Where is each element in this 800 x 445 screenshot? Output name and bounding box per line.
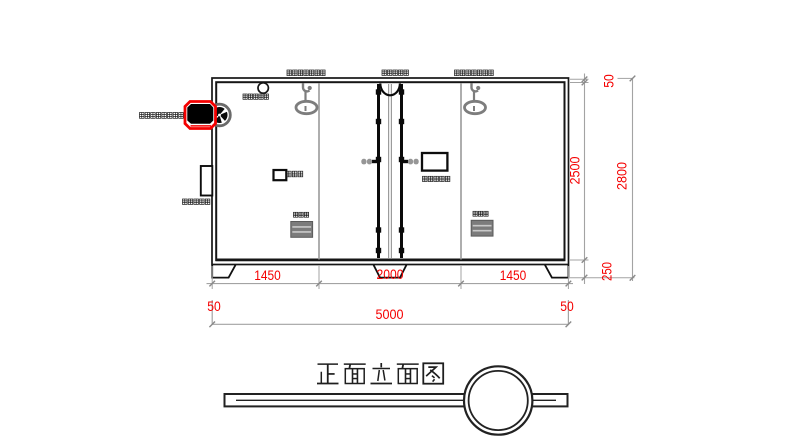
svg-text:250: 250 bbox=[600, 262, 615, 281]
svg-text:2800: 2800 bbox=[615, 162, 630, 190]
svg-text:2500: 2500 bbox=[568, 157, 583, 185]
svg-text:50: 50 bbox=[207, 299, 221, 314]
svg-text:5000: 5000 bbox=[376, 307, 404, 322]
svg-text:50: 50 bbox=[602, 74, 617, 88]
svg-text:1450: 1450 bbox=[500, 268, 527, 283]
svg-text:2000: 2000 bbox=[377, 267, 404, 282]
svg-text:50: 50 bbox=[560, 299, 574, 314]
svg-text:1450: 1450 bbox=[254, 268, 281, 283]
